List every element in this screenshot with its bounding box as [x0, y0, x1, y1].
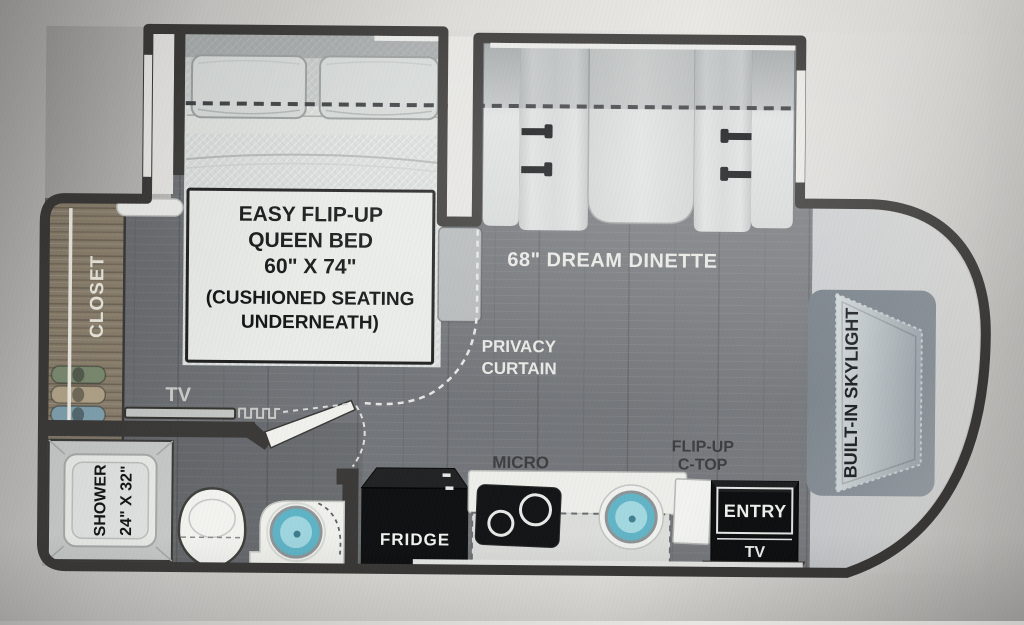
shower-label-line1: SHOWER [92, 464, 110, 537]
bed-label-line4: (CUSHIONED SEATING [206, 287, 415, 310]
bed-foot-cabinet [438, 227, 482, 321]
bathroom-right-wall-notch [336, 468, 358, 484]
floorplan-photo: BUILT-IN SKYLIGHT CLOSET [0, 0, 1024, 621]
flipup-ctop-label-line1: FLIP-UP [672, 438, 735, 456]
dinette-wall-window [796, 70, 806, 182]
bathroom-top-wall [43, 420, 255, 438]
closet-label: CLOSET [87, 255, 109, 338]
closet-stored-items [51, 366, 105, 423]
bed-top-wall-highlight [374, 36, 438, 42]
bedroom-tv-label: TV [165, 384, 191, 406]
entry-tv-label: TV [745, 544, 766, 561]
exterior-gap-left [152, 34, 174, 194]
flipup-ctop-label-line2: C-TOP [678, 456, 728, 473]
closet [47, 202, 125, 441]
pillow-left [192, 55, 307, 118]
bed-left-inner-wall [173, 27, 185, 175]
micro-label: MICRO [492, 453, 549, 472]
bed-label-line3: 60" X 74" [264, 255, 357, 279]
skylight-label: BUILT-IN SKYLIGHT [841, 308, 862, 479]
cooktop [475, 484, 562, 548]
exterior-gap-mid [447, 36, 474, 219]
dinette-label: 68" DREAM DINETTE [507, 249, 717, 273]
bedroom-tv-bar [125, 408, 235, 419]
bed-label-line5: UNDERNEATH) [241, 312, 379, 334]
privacy-curtain-label-line2: CURTAIN [481, 359, 556, 379]
rv-floorplan: BUILT-IN SKYLIGHT CLOSET [0, 0, 1024, 625]
pillow-right [320, 56, 439, 119]
shower [48, 440, 173, 561]
flip-up-counter-panel [673, 479, 712, 545]
fridge-label: FRIDGE [380, 530, 450, 550]
entry-label: ENTRY [724, 501, 787, 522]
closet-rod [69, 208, 71, 436]
bed-label-line2: QUEEN BED [248, 229, 373, 253]
fridge [361, 468, 469, 566]
bathroom-sink [267, 503, 326, 562]
kitchen-sink [599, 485, 664, 550]
bed-label-line1: EASY FLIP-UP [239, 203, 384, 227]
shower-label-line2: 24" X 32" [118, 465, 136, 535]
privacy-curtain-label-line1: PRIVACY [482, 337, 557, 357]
bed-wall-window [143, 55, 152, 177]
